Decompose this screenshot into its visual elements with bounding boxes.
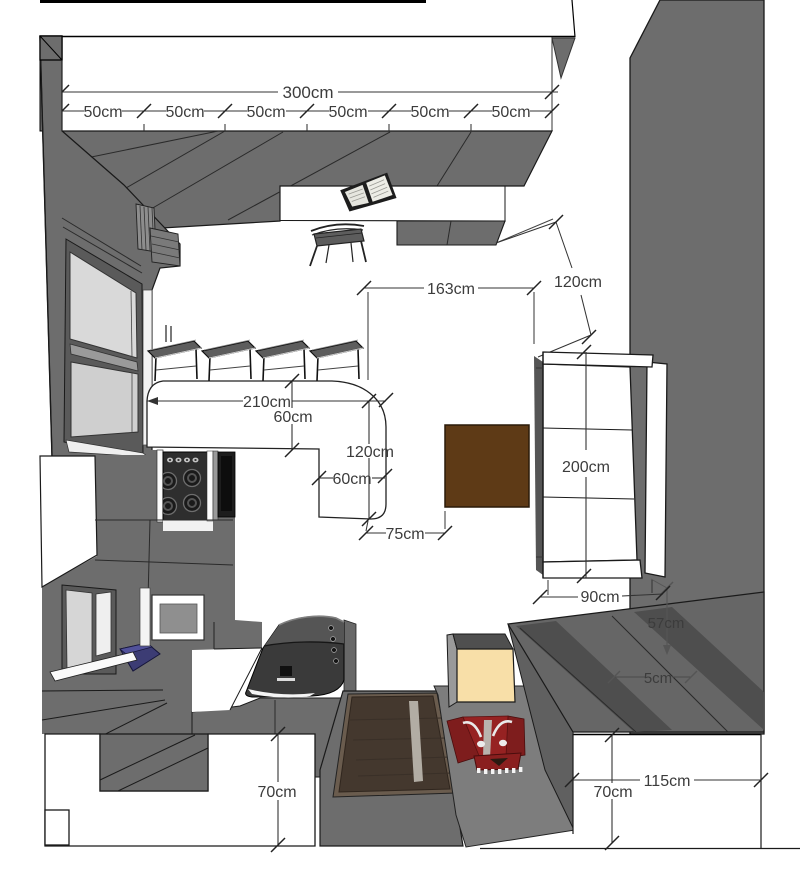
svg-text:70cm: 70cm	[593, 784, 632, 801]
svg-text:50cm: 50cm	[328, 104, 367, 121]
svg-text:50cm: 50cm	[165, 104, 204, 121]
svg-text:120cm: 120cm	[554, 274, 602, 291]
svg-text:50cm: 50cm	[410, 104, 449, 121]
svg-text:57cm: 57cm	[648, 615, 685, 632]
svg-text:75cm: 75cm	[385, 526, 424, 543]
svg-text:115cm: 115cm	[644, 773, 691, 790]
svg-text:300cm: 300cm	[282, 83, 333, 102]
svg-text:70cm: 70cm	[257, 784, 296, 801]
svg-text:50cm: 50cm	[83, 104, 122, 121]
svg-text:50cm: 50cm	[491, 104, 530, 121]
svg-text:60cm: 60cm	[332, 471, 371, 488]
svg-text:200cm: 200cm	[562, 459, 610, 476]
svg-text:50cm: 50cm	[246, 104, 285, 121]
svg-text:120cm: 120cm	[346, 444, 394, 461]
svg-text:5cm: 5cm	[644, 670, 672, 687]
svg-text:90cm: 90cm	[580, 589, 619, 606]
svg-text:60cm: 60cm	[273, 409, 312, 426]
svg-text:163cm: 163cm	[427, 281, 475, 298]
